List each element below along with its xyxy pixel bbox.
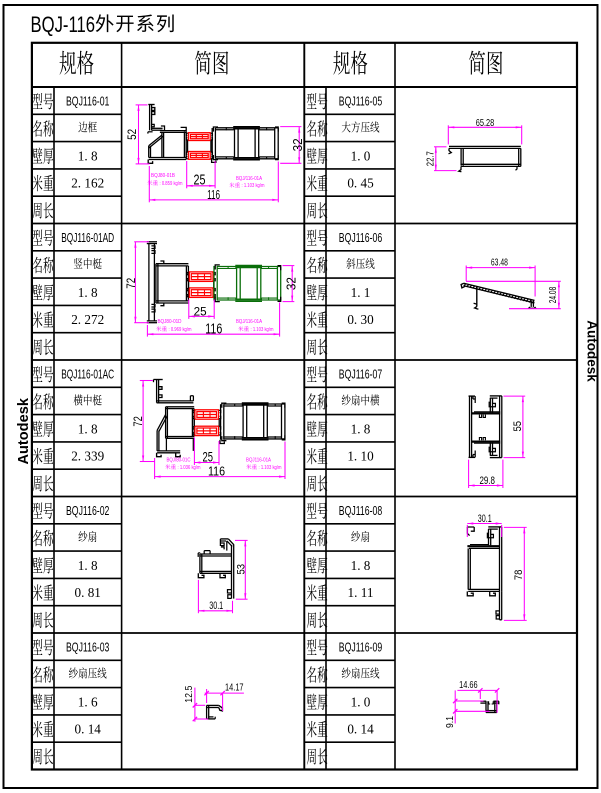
svg-text:Autodesk: Autodesk xyxy=(585,320,600,382)
svg-text:22.7: 22.7 xyxy=(426,151,437,166)
svg-text:0. 14: 0. 14 xyxy=(347,722,374,737)
svg-text:BQJ116-09: BQJ116-09 xyxy=(339,640,382,654)
svg-text:9.1: 9.1 xyxy=(444,716,456,728)
svg-text:1. 8: 1. 8 xyxy=(351,421,371,436)
svg-text:BQJ116-01: BQJ116-01 xyxy=(66,94,109,108)
svg-text:BQJ116-02: BQJ116-02 xyxy=(66,504,109,518)
svg-text:1. 8: 1. 8 xyxy=(78,285,98,300)
svg-text:: 0.859 kg/m: : 0.859 kg/m xyxy=(160,181,183,187)
svg-text:72: 72 xyxy=(126,278,138,289)
svg-text:2. 272: 2. 272 xyxy=(71,312,104,327)
svg-text:24.08: 24.08 xyxy=(548,286,559,303)
svg-text:: 1.036 kg/m: : 1.036 kg/m xyxy=(178,465,201,471)
svg-text:53: 53 xyxy=(236,564,248,575)
svg-text:1. 8: 1. 8 xyxy=(78,558,98,573)
svg-text:0. 30: 0. 30 xyxy=(347,312,374,327)
svg-text:BQJ/80-01C: BQJ/80-01C xyxy=(167,458,191,464)
svg-text:1. 8: 1. 8 xyxy=(78,148,98,163)
svg-text:0. 14: 0. 14 xyxy=(75,722,102,737)
svg-text:25: 25 xyxy=(194,306,207,318)
svg-text:BQJ-116: BQJ-116 xyxy=(31,12,96,37)
svg-text:1. 10: 1. 10 xyxy=(347,449,374,464)
svg-text:BQJ116-01AD: BQJ116-01AD xyxy=(61,231,114,245)
svg-text:BQJ/116-01A: BQJ/116-01A xyxy=(236,319,262,325)
svg-text:65.28: 65.28 xyxy=(476,117,495,129)
svg-text:116: 116 xyxy=(208,464,225,478)
svg-text:12.5: 12.5 xyxy=(183,686,195,703)
svg-text:1. 8: 1. 8 xyxy=(351,558,371,573)
svg-text:BQJ116-06: BQJ116-06 xyxy=(339,231,382,245)
svg-text:2. 162: 2. 162 xyxy=(71,176,104,191)
svg-text:1. 0: 1. 0 xyxy=(351,694,371,709)
svg-text:52: 52 xyxy=(127,129,139,140)
svg-text:63.48: 63.48 xyxy=(491,256,508,268)
svg-text:0. 45: 0. 45 xyxy=(347,176,374,191)
svg-text:: 0.969 kg/m: : 0.969 kg/m xyxy=(169,327,192,333)
svg-text:BQJ80-01D: BQJ80-01D xyxy=(158,319,182,325)
svg-text:BQJ116-07: BQJ116-07 xyxy=(339,367,382,381)
svg-text:14.17: 14.17 xyxy=(225,681,244,693)
svg-text:55: 55 xyxy=(512,421,524,432)
svg-text:0. 81: 0. 81 xyxy=(75,585,101,600)
svg-text:BQJ116-05: BQJ116-05 xyxy=(339,94,382,108)
svg-text:32: 32 xyxy=(284,277,298,290)
svg-text:32: 32 xyxy=(291,138,305,151)
svg-text:30.1: 30.1 xyxy=(478,513,492,525)
svg-text:116: 116 xyxy=(207,188,220,202)
svg-text:: 1.103 kg/m: : 1.103 kg/m xyxy=(251,327,274,333)
svg-text:1. 6: 1. 6 xyxy=(78,694,98,709)
svg-text:BQJ80-01B: BQJ80-01B xyxy=(151,173,175,179)
svg-text:: 1.103 kg/m: : 1.103 kg/m xyxy=(259,465,282,471)
svg-text:: 1.103 kg/m: : 1.103 kg/m xyxy=(242,183,265,189)
svg-text:78: 78 xyxy=(513,570,525,581)
svg-text:2. 339: 2. 339 xyxy=(71,449,104,464)
svg-text:14.66: 14.66 xyxy=(459,679,478,691)
svg-text:BQJ116-08: BQJ116-08 xyxy=(339,504,382,518)
svg-text:BQJ116-01A: BQJ116-01A xyxy=(246,458,271,464)
svg-text:29.8: 29.8 xyxy=(479,475,495,487)
svg-text:BQJ116-01AC: BQJ116-01AC xyxy=(61,367,114,381)
svg-text:25: 25 xyxy=(194,173,206,189)
svg-text:30.1: 30.1 xyxy=(209,600,223,612)
svg-text:BQJ/116-01A: BQJ/116-01A xyxy=(236,176,262,182)
svg-text:72: 72 xyxy=(133,416,145,427)
svg-text:1. 11: 1. 11 xyxy=(348,585,374,600)
svg-text:1. 1: 1. 1 xyxy=(351,285,371,300)
svg-text:BQJ116-03: BQJ116-03 xyxy=(66,640,109,654)
svg-text:25: 25 xyxy=(203,449,214,464)
svg-text:Autodesk: Autodesk xyxy=(16,397,32,464)
svg-text:1. 8: 1. 8 xyxy=(78,421,98,436)
svg-text:116: 116 xyxy=(205,321,222,337)
svg-text:1. 0: 1. 0 xyxy=(351,148,371,163)
